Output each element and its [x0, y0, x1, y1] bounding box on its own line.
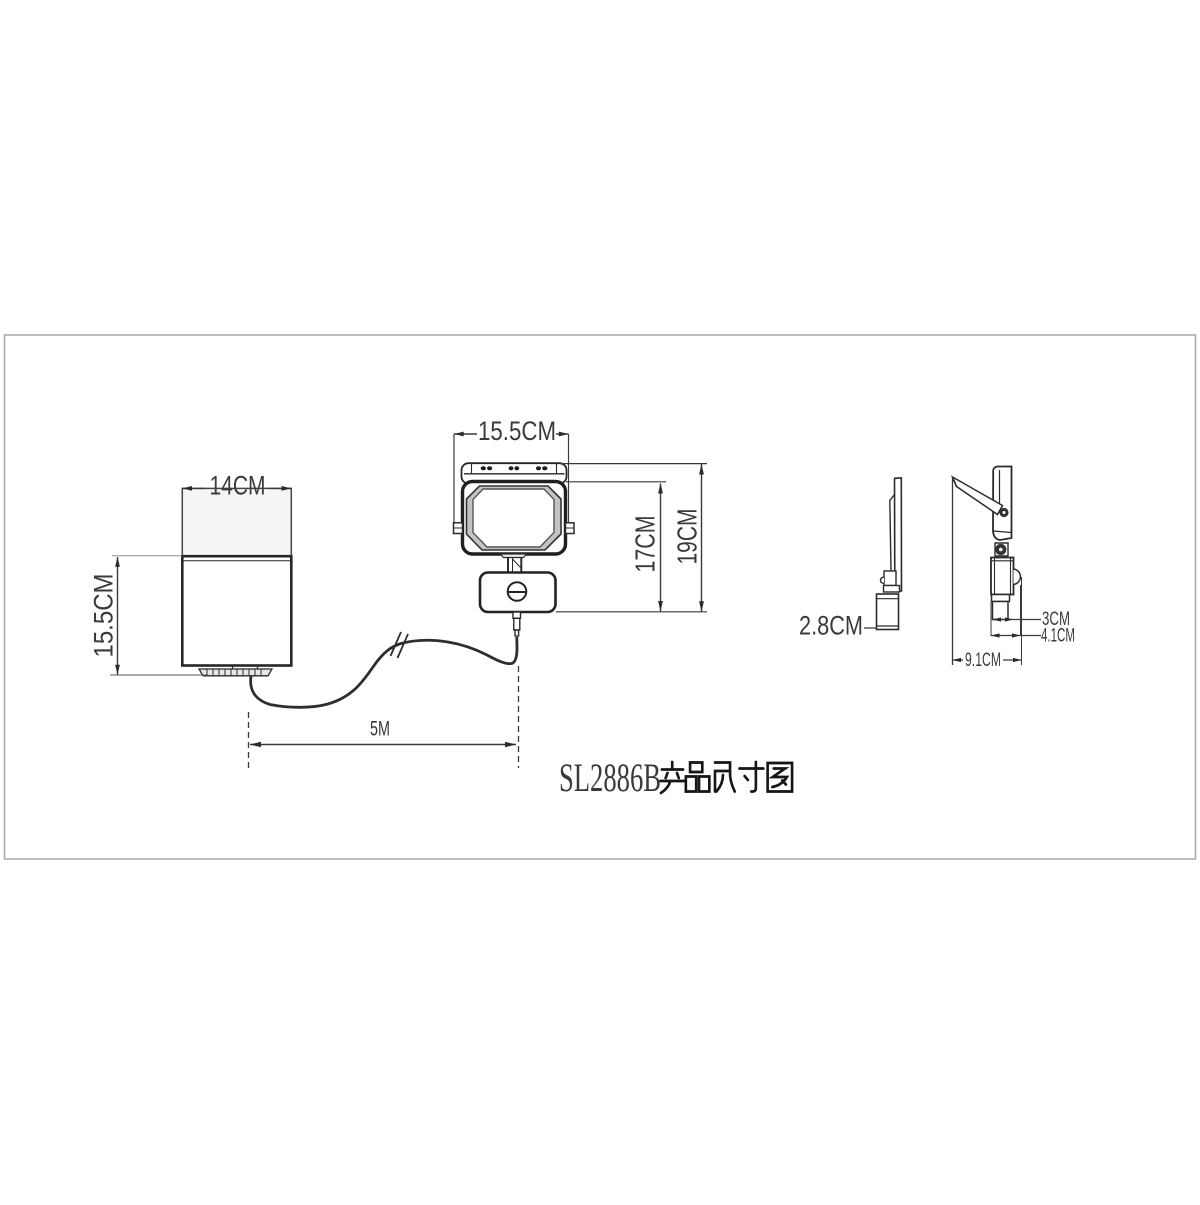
svg-text:15.5CM: 15.5CM	[478, 416, 556, 446]
svg-text:4.1CM: 4.1CM	[1041, 626, 1075, 647]
svg-text:2.8CM: 2.8CM	[799, 611, 863, 641]
svg-text:5M: 5M	[370, 718, 390, 741]
svg-text:15.5CM: 15.5CM	[89, 574, 119, 658]
svg-text:19CM: 19CM	[672, 509, 703, 565]
svg-text:SL2886B: SL2886B	[559, 755, 661, 800]
svg-text:17CM: 17CM	[630, 516, 661, 573]
svg-text:9.1CM: 9.1CM	[965, 650, 1001, 671]
svg-text:14CM: 14CM	[210, 471, 266, 501]
